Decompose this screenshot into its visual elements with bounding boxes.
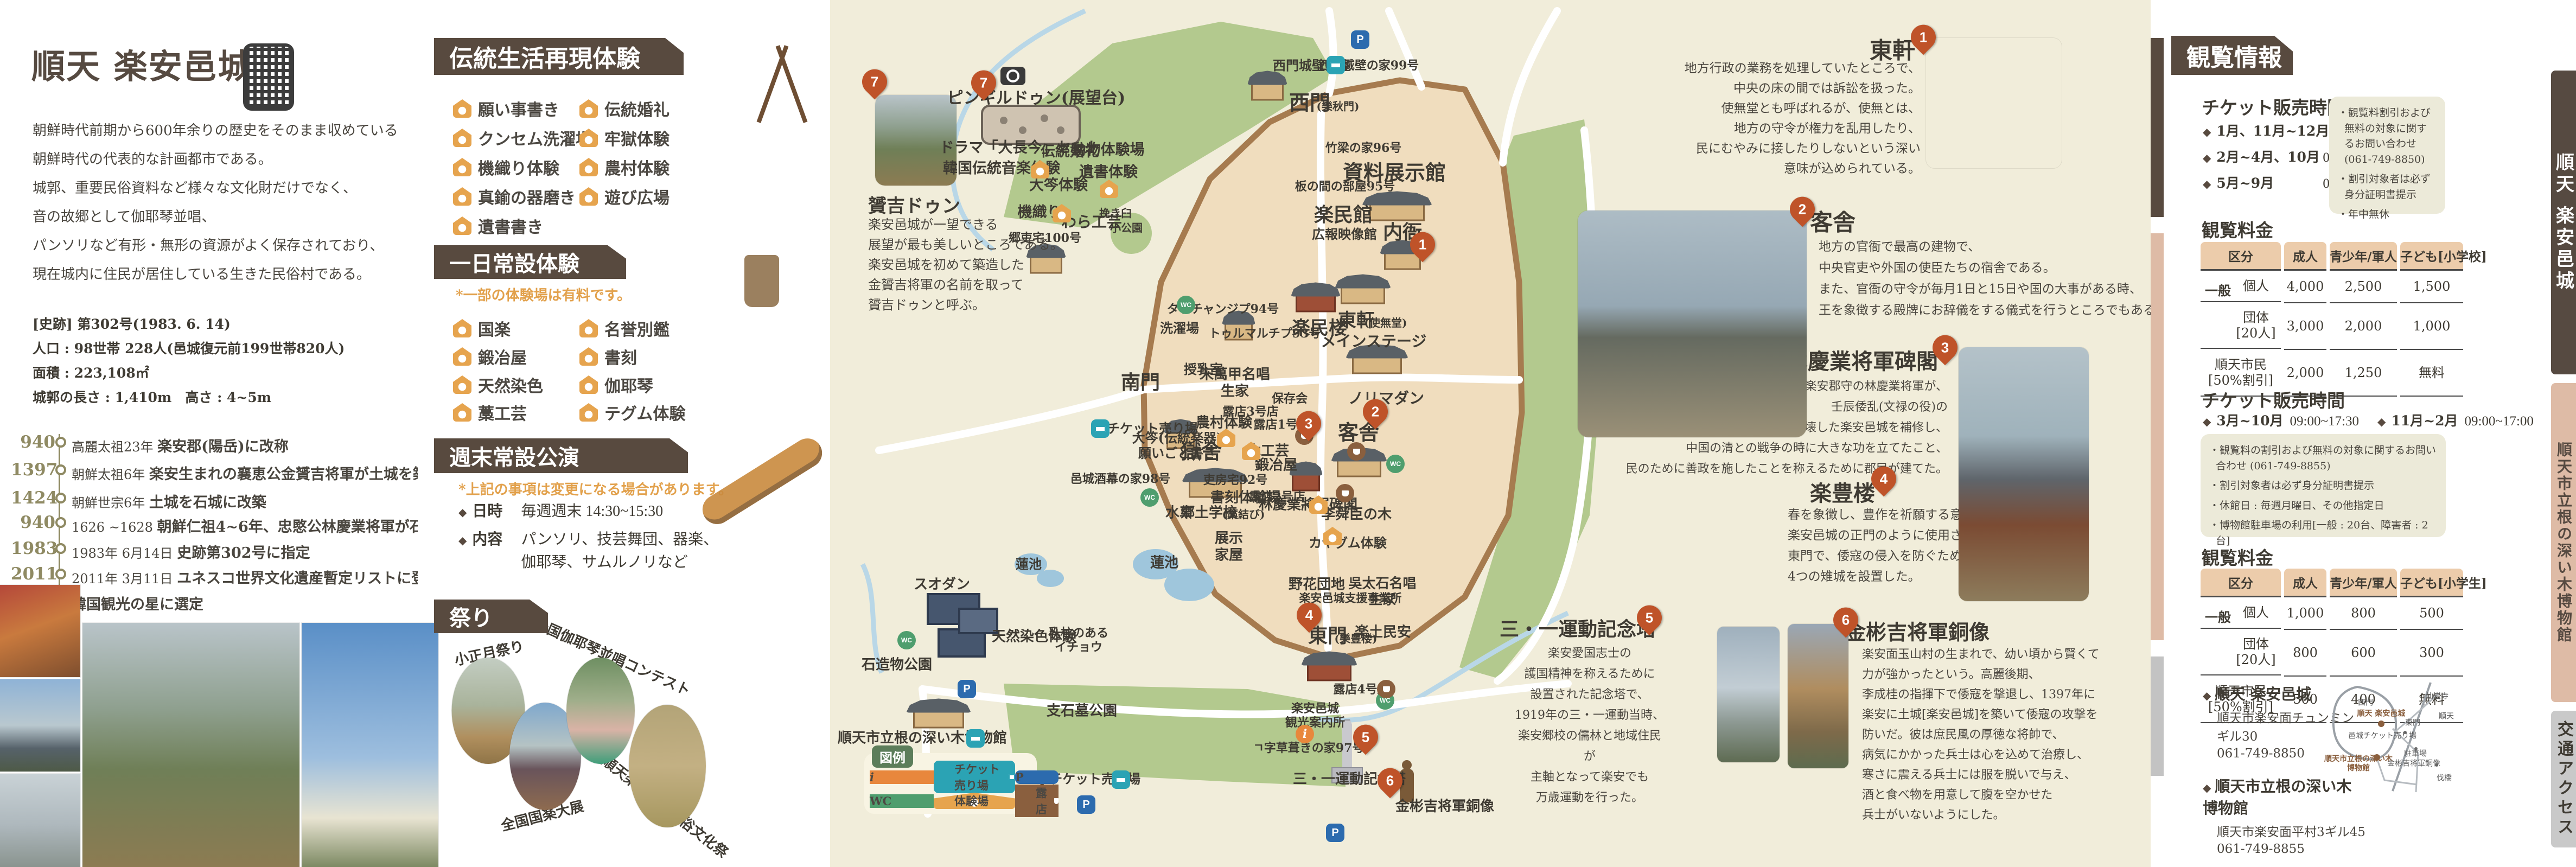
map-label: 蓮池 — [1016, 557, 1042, 572]
fees-value: 500 — [2400, 597, 2463, 630]
fees-col: 青少年/軍人 — [2330, 569, 2397, 597]
viewpoint-title: 贇吉ドゥン — [868, 191, 960, 218]
photo-pavilion — [0, 679, 80, 772]
experience-item: 天然染色 — [453, 373, 543, 397]
experience-label: 真鍮の器磨き — [478, 184, 576, 208]
map-icon — [1336, 484, 1354, 502]
diamond-bullet-icon: ◆ — [458, 534, 467, 547]
timeline-event: 朝鮮世宗6年 土城を石城に改築 — [72, 490, 266, 512]
fees-value: 4,000 — [2284, 271, 2326, 303]
fees-row: 団体 [20人] 3,000 2,000 1,000 — [2201, 303, 2446, 350]
map-label: 支石墓公園 — [1047, 703, 1117, 720]
fees-value: 2,500 — [2330, 271, 2397, 303]
diamond-bullet-icon: ◆ — [2203, 415, 2211, 428]
schedule-value: 毎週週末 14:30~15:30 — [521, 499, 663, 521]
legend-item: P — [1015, 770, 1059, 784]
map-icon — [1112, 770, 1130, 789]
experience-house-icon — [453, 99, 471, 118]
fees-value: 1,500 — [2400, 271, 2463, 303]
hours-period: 11月~2月 — [2391, 410, 2458, 430]
experience-item: 鍛冶屋 — [453, 345, 527, 368]
minimap-label: 駐車場 — [2404, 750, 2427, 759]
legend-grid: i チケット売り場 PWC 体験場 露店 — [870, 765, 1031, 813]
hanok-building-icon — [1301, 652, 1357, 681]
info-header-text: 観覧情報 — [2186, 38, 2282, 73]
map-label: ㄱ字草葺きの家97号 — [1253, 742, 1364, 756]
fees-row: 個人 4,000 2,500 1,500 — [2201, 271, 2446, 303]
monument-text: 楽安愛国志士の 護国精神を称えるために 設置された記念塔で、 1919年の三・一… — [1514, 643, 1666, 808]
timeline-row: 1983 1983年 6月14日 史跡第302号に指定 — [0, 539, 404, 562]
note-line: 割引対象者は必ず身分証明書提示 — [2209, 478, 2437, 494]
map-label: 水車 — [1165, 505, 1194, 522]
map-icon: i — [1296, 725, 1314, 743]
fees-value: 800 — [2284, 630, 2326, 677]
timeline-year: 1424 — [11, 488, 55, 508]
map-label: 吏房宅92号 — [1203, 474, 1268, 488]
ticket-hours1-title: チケット販売時間 — [2202, 93, 2345, 119]
brochure: 順天 楽安邑城 朝鮮時代前期から600年余りの歴史をそのまま収めている 朝鮮時代… — [0, 0, 2576, 867]
timeline-row: 940 高麗太祖23年 楽安郡(陽岳)に改称 — [0, 432, 404, 455]
map-legend: 図例 i チケット売り場 PWC 体験場 露店 — [864, 753, 1037, 814]
experience-house-icon — [453, 187, 471, 206]
monument-title: 三・一運動記念塔 — [1500, 614, 1656, 642]
numbered-pin-icon: 5 — [1631, 600, 1667, 635]
ticket-hours2-rows: ◆ 3月~10月 09:00~17:30 ◆ 11月~2月 09:00~17:0… — [2203, 410, 2550, 430]
section-title-text: 週末常設公演 — [449, 440, 579, 471]
experience-label: 名誉別鑑 — [604, 316, 669, 340]
festival-photo — [566, 658, 635, 764]
note-line: 観覧料の割引および無料の対象に関するお問い合わせ (061-749-8855) — [2209, 443, 2437, 474]
schedule-value: パンソリ、技芸舞団、器楽、 伽耶琴、サムルノリなど — [521, 528, 718, 574]
experience-label: 伝統婚礼 — [604, 97, 669, 120]
numbered-pin-icon: 6 — [1372, 763, 1407, 798]
schedule-row: ◆ 内容 パンソリ、技芸舞団、器楽、 伽耶琴、サムルノリなど — [458, 527, 806, 574]
info-header: 観覧情報 — [2171, 36, 2293, 75]
timeline-row: 2011 2011年 3月11日 ユネスコ世界文化遺産暫定リストに登録 — [0, 564, 404, 587]
timeline-dot — [55, 464, 66, 475]
experience-label: 国楽 — [478, 316, 511, 340]
numbered-pin-icon: 3 — [1291, 406, 1326, 441]
experience-item: 遊び広場 — [579, 184, 669, 208]
intro-text: 朝鮮時代前期から600年余りの歴史をそのまま収めている 朝鮮時代の代表的な計画都… — [33, 117, 412, 289]
map-label: 竹梁の家96号 — [1325, 142, 1402, 156]
legend-label: チケット売り場 — [954, 761, 1004, 793]
experience-house-icon — [579, 347, 598, 366]
fees-value: 800 — [2330, 597, 2397, 630]
map-label: 小公園 — [1110, 222, 1143, 235]
map-icon — [1327, 56, 1345, 74]
legend-item: 体験場 — [934, 793, 1015, 809]
note-line: 観覧料割引および無料の対象に関するお問い合わせ (061-749-8850) — [2338, 105, 2437, 167]
numbered-pin-icon: 2 — [1357, 394, 1393, 429]
map-label: 洗濯場 — [1160, 321, 1199, 336]
fees-header-row: 区分 成人 青少年/軍人 子ども[小学校] — [2201, 242, 2446, 271]
fees-value: 1,000 — [2400, 303, 2463, 350]
timeline-row: 940 1626 ~1628 朝鮮仁祖4~6年、忠愍公林慶業将軍が石城を修復 — [0, 513, 404, 535]
experience-label: 機織り体験 — [478, 155, 559, 179]
numbered-pin-icon: 7 — [857, 64, 892, 99]
map-label: 邑城酒幕の家98号 — [1070, 473, 1171, 487]
map-label: 広報映像館 — [1312, 227, 1377, 242]
hours-row: ◆ 11月~2月 09:00~17:00 — [2377, 410, 2534, 430]
section-title-text: 伝統生活再現体験 — [449, 39, 640, 74]
diamond-bullet-icon: ◆ — [458, 506, 467, 519]
kyaksa-photo — [1578, 211, 1807, 437]
experience-label: 遺書書き — [478, 214, 543, 238]
timeline-row: 1397 朝鮮太祖6年 楽安生まれの襄恵公金贇吉将軍が土城を築造 — [0, 460, 404, 483]
tab-label: 順天 楽安邑城 — [2551, 152, 2576, 292]
legend-icon — [1015, 793, 1031, 809]
legend-item: WC — [870, 794, 934, 808]
fees-value: 300 — [2400, 630, 2463, 677]
legend-icon — [934, 769, 950, 785]
minimap-label: 仙岩寺 — [2426, 692, 2449, 702]
fees-row: 団体 [20人] 800 600 300 — [2201, 630, 2446, 677]
timeline-year: 2011 — [11, 564, 55, 584]
hanok-building-icon — [1291, 283, 1341, 313]
experience-item: 伽耶琴 — [579, 373, 653, 397]
fees-value: 1,000 — [2284, 597, 2326, 630]
numbered-pin-icon: 6 — [1828, 602, 1863, 637]
weekend-note: *上記の事項は変更になる場合があります。 — [458, 479, 732, 499]
fees-col: 区分 — [2201, 569, 2281, 597]
note-line: 休館日 : 毎週月曜日、その他指定日 — [2209, 498, 2437, 514]
daily-note: *一部の体験場は有料です。 — [456, 284, 631, 304]
timeline-event: 韓国観光の星に選定 — [72, 592, 203, 614]
tab-museum: 順天市立根の深い木博物館 — [2551, 383, 2576, 702]
experience-label: 伽耶琴 — [604, 373, 653, 397]
experience-house-icon — [453, 129, 471, 147]
timeline-year: 940 — [11, 432, 55, 452]
experience-house-icon — [579, 403, 598, 422]
experience-house-icon — [579, 319, 598, 337]
fees-col: 成人 — [2284, 242, 2326, 271]
experience-item: 国楽 — [453, 316, 511, 340]
map-icon: WC — [1140, 488, 1159, 507]
experience-house-icon — [579, 158, 598, 176]
map-icon — [1091, 419, 1110, 438]
experience-item: テグム体験 — [579, 400, 685, 424]
legend-label: 体験場 — [954, 793, 989, 809]
timeline-event: 朝鮮太祖6年 楽安生まれの襄恵公金贇吉将軍が土城を築造 — [72, 462, 442, 483]
site-stats: [史跡] 第302号(1983. 6. 14) 人口 : 98世帯 228人(邑… — [33, 312, 412, 410]
minimap-label: 金彬吉将軍銅像 — [2387, 760, 2440, 769]
map-label: 楽安邑城 観光案内所 — [1285, 702, 1345, 730]
legend-icon — [934, 793, 950, 809]
minimap-label: 東門 — [2405, 719, 2420, 728]
experience-house-icon — [453, 375, 471, 394]
map-label: 楽土民安 — [1355, 624, 1411, 641]
map-label: 李舜臣の木 — [1321, 507, 1392, 524]
hours-time: 09:00~17:30 — [2290, 414, 2359, 429]
map-label: 大笒(伝統楽器) 願いごと書き — [1132, 431, 1223, 462]
fees-col: 区分 — [2201, 242, 2281, 271]
experience-item: 機織り体験 — [453, 155, 559, 179]
experience-house-icon — [453, 158, 471, 176]
page-title: 順天 楽安邑城 — [31, 39, 253, 88]
note-line: 博物館駐車場の利用[一般 : 20台、障害者 : 2台] — [2209, 518, 2437, 549]
numbered-pin-icon: 4 — [1291, 597, 1327, 633]
timeline-event: 高麗太祖23年 楽安郡(陽岳)に改称 — [72, 435, 289, 456]
timeline-dot — [55, 543, 66, 554]
notes2: 観覧料の割引および無料の対象に関するお問い合わせ (061-749-8855)割… — [2201, 434, 2446, 537]
tab-eupseong: 順天 楽安邑城 — [2551, 71, 2576, 374]
hours-period: 1月、11月~12月 — [2216, 120, 2329, 140]
festival-photo — [629, 705, 706, 827]
map-icon: P — [1351, 30, 1369, 49]
fees-value: 無料 — [2400, 350, 2463, 397]
fees-value: 2,000 — [2330, 303, 2397, 350]
map-label: 吳太石名唱 生家 — [1348, 576, 1416, 608]
hanok-building-icon — [1247, 71, 1287, 101]
notes1: 観覧料割引および無料の対象に関するお問い合わせ (061-749-8850)割引… — [2329, 97, 2445, 214]
fees-row-label: 団体 [20人] — [2201, 303, 2281, 349]
section-title-reenactment: 伝統生活再現体験 — [434, 38, 684, 75]
minimap-label: 順天 — [2439, 712, 2454, 722]
timeline-dot — [55, 569, 66, 579]
fees-col: 成人 — [2284, 569, 2326, 597]
experience-item: 名誉別鑑 — [579, 316, 669, 340]
experience-label: 遊び広場 — [604, 184, 669, 208]
map-label: 郷吏宅100号 — [1009, 232, 1081, 246]
numbered-pin-icon: 3 — [1927, 330, 1962, 365]
experience-item: 願い事書き — [453, 97, 559, 120]
fees-header-row: 区分 成人 青少年/軍人 子ども[小学生] — [2201, 569, 2446, 597]
experience-label: テグム体験 — [604, 400, 685, 424]
tab-access: 交通アクセス — [2551, 711, 2576, 847]
map-icon: WC — [1177, 296, 1195, 314]
fees1-table: 区分 成人 青少年/軍人 子ども[小学校] 一般 個人 4,000 2,500 … — [2201, 242, 2446, 397]
experience-house-icon — [453, 347, 471, 366]
timeline-row: 1424 朝鮮世宗6年 土城を石城に改築 — [0, 488, 404, 511]
experience-item: クンセム洗濯場 — [453, 126, 592, 150]
map-label: スオダン — [914, 577, 970, 594]
map-label: 農村体験 — [1196, 415, 1252, 432]
map-label: 楽民館 — [1314, 203, 1373, 226]
experience-item: 農村体験 — [579, 155, 669, 179]
schedule-key: 内容 — [472, 527, 521, 549]
weekend-schedule: ◆ 日時 毎週週末 14:30~15:30 ◆ 内容 パンソリ、技芸舞団、器楽、… — [458, 499, 806, 581]
map-label: 乳柱のある イチョウ — [1049, 627, 1108, 655]
desc3-photo — [1959, 347, 2089, 601]
legend-item: チケット売り場 — [934, 761, 1015, 793]
map-label: カヤグム体験 — [1309, 535, 1387, 551]
experience-house-icon — [453, 319, 471, 337]
map-label: 挽き臼 — [1099, 207, 1132, 220]
map-icon: P — [1077, 795, 1095, 814]
fees-col: 子ども[小学生] — [2400, 569, 2463, 597]
timeline-dot — [55, 437, 66, 448]
access-address: 順天市楽安面平村3ギル45 — [2217, 821, 2365, 840]
map-label: (使無堂) — [1364, 317, 1407, 330]
map-icon: WC — [1386, 455, 1405, 473]
timeline-dot — [55, 493, 66, 503]
hanok-building-icon — [906, 699, 971, 729]
map-icon — [1000, 67, 1025, 85]
experience-label: 牢獄体験 — [604, 126, 669, 150]
diamond-bullet-icon: ◆ — [2203, 125, 2211, 138]
hours-row: ◆ 3月~10月 09:00~17:30 — [2203, 410, 2359, 430]
fees1-title: 観覧料金 — [2202, 216, 2273, 242]
experience-item: 遺書書き — [453, 214, 543, 238]
hours-period: 3月~10月 — [2216, 410, 2283, 430]
access-phone: 061-749-8855 — [2217, 842, 2365, 856]
note-line: 年中無休 — [2338, 207, 2437, 222]
map-icon: P — [1326, 824, 1344, 842]
map-icon — [966, 729, 985, 748]
timeline-year: 940 — [11, 513, 55, 532]
fees-group-label: 一般 — [2205, 607, 2231, 626]
map-label: 資料展示館 — [1343, 161, 1446, 186]
fees-group-label: 一般 — [2205, 280, 2231, 299]
map-icon: P — [958, 680, 976, 698]
map-label: 金彬吉将軍銅像 — [1395, 799, 1494, 815]
map-label: (樂秋門) — [1317, 100, 1360, 113]
minimap-label: 順天市立根の深い木 博物館 — [2324, 755, 2393, 773]
experience-label: 農村体験 — [604, 155, 669, 179]
timeline-year: 1397 — [11, 460, 55, 480]
section-title-text: 祭り — [449, 601, 493, 632]
photo-autumn — [0, 585, 80, 677]
map-label: 蓮池 — [1150, 555, 1178, 572]
hours-period: 5月~9月 — [2216, 173, 2323, 192]
statue-photo — [1788, 624, 1848, 768]
map-icon: WC — [897, 631, 916, 649]
fees-value: 600 — [2330, 630, 2397, 677]
photo-sky-village — [302, 623, 438, 867]
legend-item: i — [870, 770, 934, 784]
minimap-label: 伐橋 — [2437, 774, 2452, 783]
section-title-festival: 祭り — [434, 600, 548, 633]
experience-item: 牢獄体験 — [579, 126, 669, 150]
qr-code — [243, 43, 294, 111]
diamond-bullet-icon: ◆ — [2203, 151, 2211, 164]
section-title-text: 一日常設体験 — [449, 246, 579, 278]
legend-label: 露店 — [1036, 785, 1050, 817]
fees-row: 個人 1,000 800 500 — [2201, 597, 2446, 630]
experience-house-icon — [579, 99, 598, 118]
section-title-weekend: 週末常設公演 — [434, 438, 688, 473]
tab-label: 交通アクセス — [2552, 721, 2575, 838]
map-icon — [1347, 442, 1366, 461]
legend-title: 図例 — [872, 745, 913, 768]
numbered-pin-icon: 2 — [1784, 192, 1820, 227]
map-icon — [1377, 680, 1395, 698]
desc1-photo — [1926, 38, 2062, 168]
photo-panorama — [82, 623, 299, 867]
fees-value: 3,000 — [2284, 303, 2326, 350]
hours-period: 2月~4月、10月 — [2216, 146, 2323, 166]
experience-house-icon — [453, 403, 471, 422]
timeline-event: 1983年 6月14日 史跡第302号に指定 — [72, 541, 310, 562]
photo-fog — [0, 774, 80, 867]
minimap-label: 西門 — [2358, 699, 2373, 708]
experience-house-icon — [579, 375, 598, 394]
map-label: メインステージ — [1321, 332, 1427, 350]
experience-house-icon — [453, 216, 471, 235]
numbered-pin-icon: 5 — [1348, 719, 1383, 755]
timeline-event: 2011年 3月11日 ユネスコ世界文化遺産暫定リストに登録 — [72, 566, 441, 588]
experience-item: 伝統婚礼 — [579, 97, 669, 120]
note-line: 割引対象者は必ず身分証明書提示 — [2338, 171, 2437, 202]
diamond-bullet-icon: ◆ — [2377, 415, 2386, 428]
legend-item: 露店 — [1015, 785, 1059, 817]
experience-item: 藁工芸 — [453, 400, 527, 424]
map-label: 遺書体験 — [1079, 164, 1138, 181]
numbered-pin-icon: 1 — [1405, 227, 1440, 262]
brush-pot-doodle — [744, 255, 779, 307]
experience-item: 真鍮の器磨き — [453, 184, 576, 208]
minimap-label: 順天 楽安邑城 — [2357, 710, 2406, 719]
diamond-bullet-icon: ◆ — [2203, 177, 2211, 190]
experience-label: クンセム洗濯場 — [478, 126, 592, 150]
map-label: 宋萬甲名唱 生家 — [1200, 366, 1270, 399]
hours-time: 09:00~17:00 — [2464, 414, 2533, 429]
timeline-year: 1983 — [11, 539, 55, 558]
map-label: 石造物公園 — [862, 657, 932, 674]
map-label: 南門 — [1121, 371, 1160, 394]
panel-overview: 順天 楽安邑城 朝鮮時代前期から600年余りの歴史をそのまま収めている 朝鮮時代… — [0, 0, 418, 867]
experience-label: 藁工芸 — [478, 400, 527, 424]
timeline-dot — [55, 517, 66, 528]
section-title-daily: 一日常設体験 — [434, 245, 626, 279]
schedule-key: 日時 — [472, 499, 521, 521]
experience-label: 書刻 — [604, 345, 637, 368]
ticket-hours2-title: チケット販売時間 — [2202, 386, 2345, 412]
tab-label: 順天市立根の深い木博物館 — [2553, 442, 2574, 643]
access-minimap: 西門仙岩寺順天東門順天 楽安邑城邑城チケット売り場駐車場順天市立根の深い木 博物… — [2325, 677, 2460, 802]
experience-label: 天然染色 — [478, 373, 543, 397]
map-label: 展示 家屋 — [1215, 530, 1243, 563]
experience-house-icon — [579, 187, 598, 206]
map-label: 鍛冶屋 — [1255, 457, 1297, 474]
monument-photo — [1717, 627, 1780, 762]
numbered-pin-icon: 7 — [966, 65, 1001, 100]
map-label: 動物体験場 — [1072, 142, 1145, 159]
experience-item: 書刻 — [579, 345, 637, 368]
fees-row-label: 団体 [20人] — [2201, 630, 2281, 675]
experience-house-icon — [579, 129, 598, 147]
numbered-pin-icon: 1 — [1905, 20, 1941, 55]
experience-label: 鍛冶屋 — [478, 345, 527, 368]
experience-label: 願い事書き — [478, 97, 559, 120]
fees-col: 青少年/軍人 — [2330, 242, 2397, 271]
fees-col: 子ども[小学校] — [2400, 242, 2463, 271]
minimap-label: 邑城チケット売り場 — [2348, 732, 2416, 741]
hanok-building-icon — [1335, 275, 1391, 304]
numbered-pin-icon: 4 — [1866, 461, 1901, 496]
